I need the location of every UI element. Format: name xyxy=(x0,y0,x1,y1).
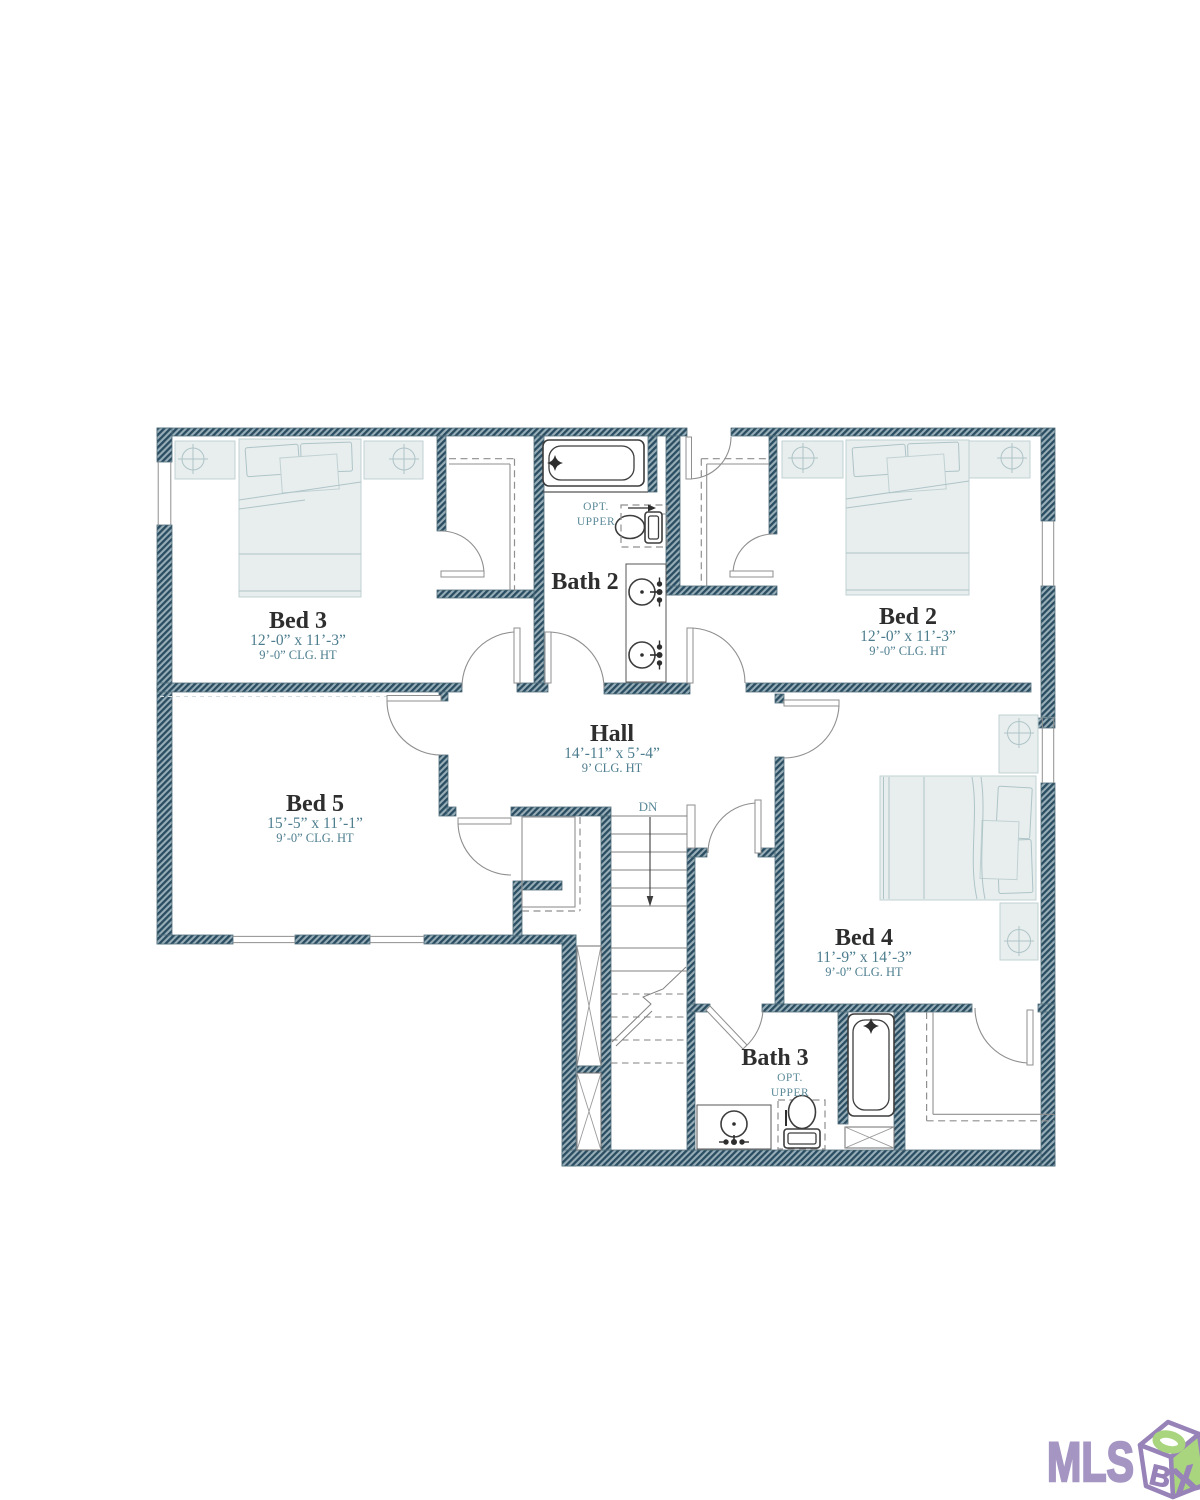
svg-text:9’-0” CLG. HT: 9’-0” CLG. HT xyxy=(259,648,337,662)
svg-text:OPT.: OPT. xyxy=(777,1072,803,1084)
svg-text:Bed 5: Bed 5 xyxy=(286,791,344,817)
svg-text:DN: DN xyxy=(639,799,658,814)
svg-text:Bath 2: Bath 2 xyxy=(551,569,618,595)
svg-text:MLS: MLS xyxy=(1047,1430,1134,1493)
svg-text:Bed 4: Bed 4 xyxy=(835,925,893,951)
svg-text:Hall: Hall xyxy=(590,721,634,747)
svg-text:Bed 3: Bed 3 xyxy=(269,608,327,634)
svg-text:OPT.: OPT. xyxy=(583,501,609,513)
svg-text:9’-0” CLG. HT: 9’-0” CLG. HT xyxy=(869,644,947,658)
svg-text:12’-0” x 11’-3”: 12’-0” x 11’-3” xyxy=(860,628,956,645)
svg-text:9’ CLG. HT: 9’ CLG. HT xyxy=(582,761,643,775)
svg-text:15’-5” x 11’-1”: 15’-5” x 11’-1” xyxy=(267,815,363,832)
svg-text:9’-0” CLG. HT: 9’-0” CLG. HT xyxy=(276,831,354,845)
svg-text:UPPER: UPPER xyxy=(577,516,615,528)
svg-text:11’-9” x 14’-3”: 11’-9” x 14’-3” xyxy=(816,949,912,966)
svg-text:Bath 3: Bath 3 xyxy=(741,1045,808,1071)
svg-text:14’-11” x 5’-4”: 14’-11” x 5’-4” xyxy=(564,745,660,762)
svg-text:UPPER: UPPER xyxy=(771,1087,809,1099)
svg-text:9’-0” CLG. HT: 9’-0” CLG. HT xyxy=(825,965,903,979)
svg-text:12’-0” x 11’-3”: 12’-0” x 11’-3” xyxy=(250,632,346,649)
svg-text:Bed 2: Bed 2 xyxy=(879,604,937,630)
